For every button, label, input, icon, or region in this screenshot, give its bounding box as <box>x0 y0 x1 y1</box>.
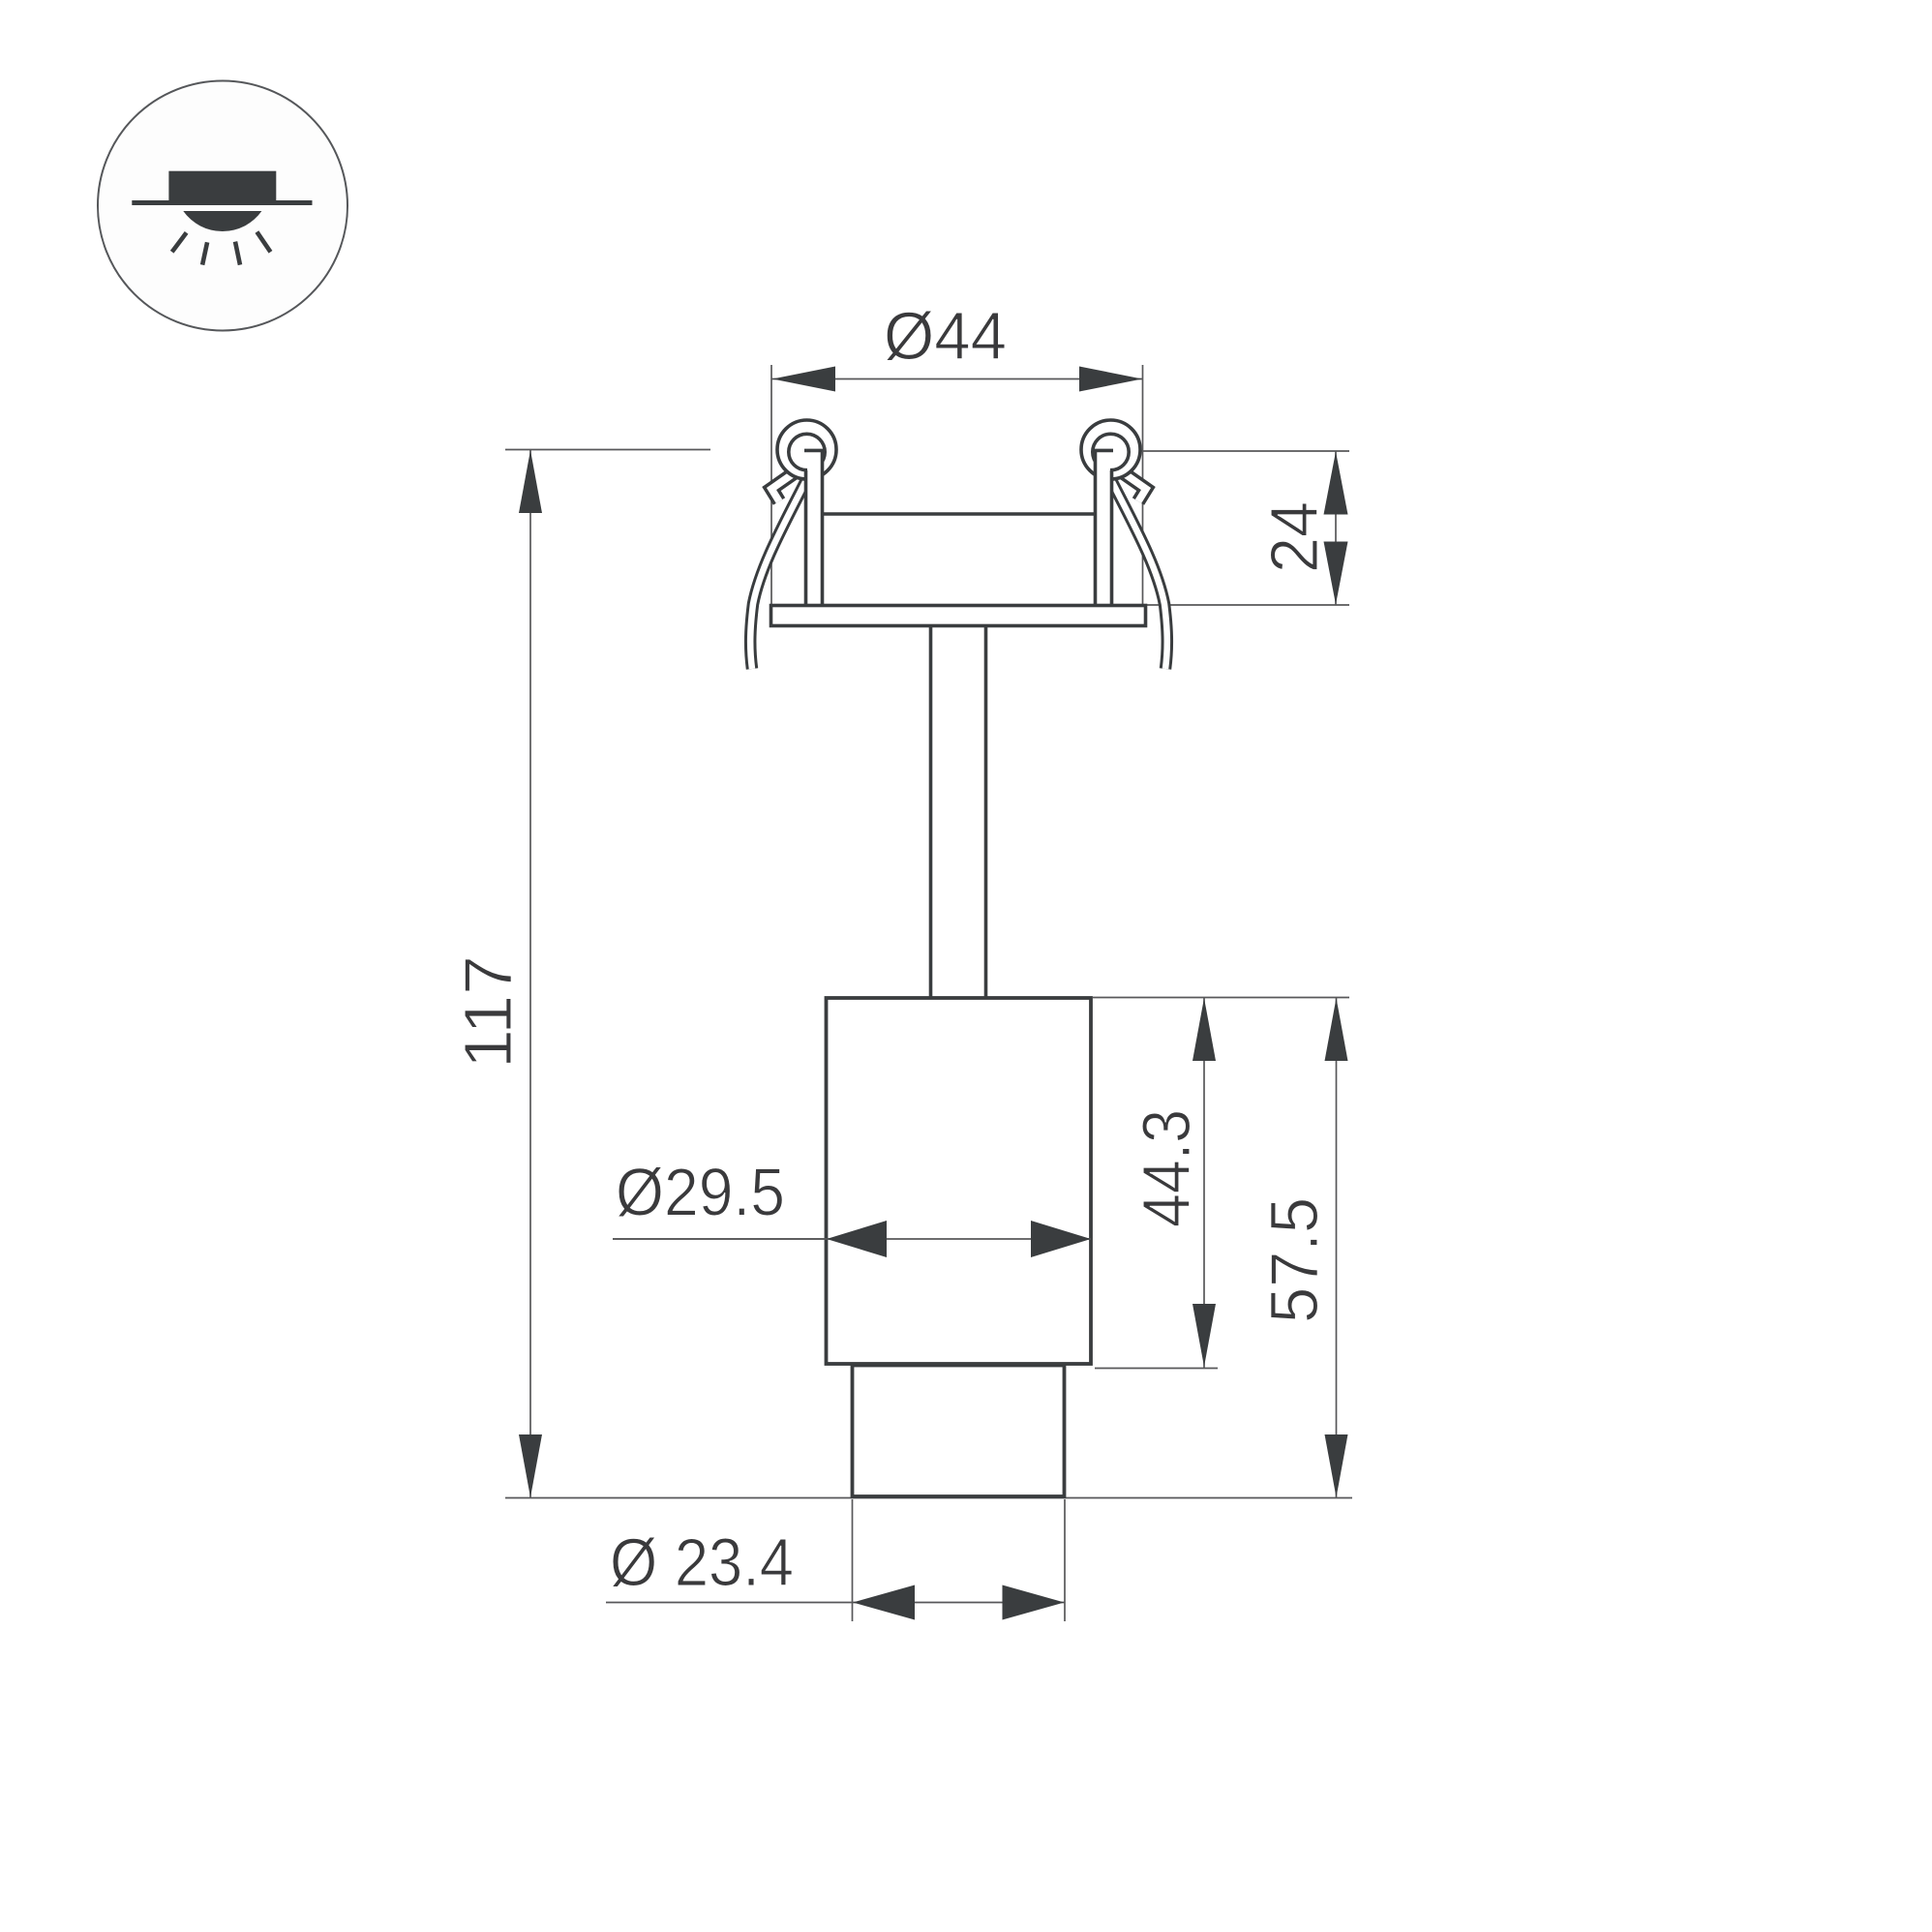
svg-text:57.5: 57.5 <box>1256 1197 1332 1323</box>
svg-text:117: 117 <box>450 955 526 1069</box>
svg-text:Ø29.5: Ø29.5 <box>616 1155 785 1230</box>
svg-text:44.3: 44.3 <box>1129 1109 1204 1227</box>
svg-text:Ø44: Ø44 <box>884 298 1007 374</box>
svg-text:24: 24 <box>1256 501 1332 573</box>
svg-text:Ø 23.4: Ø 23.4 <box>610 1524 794 1600</box>
